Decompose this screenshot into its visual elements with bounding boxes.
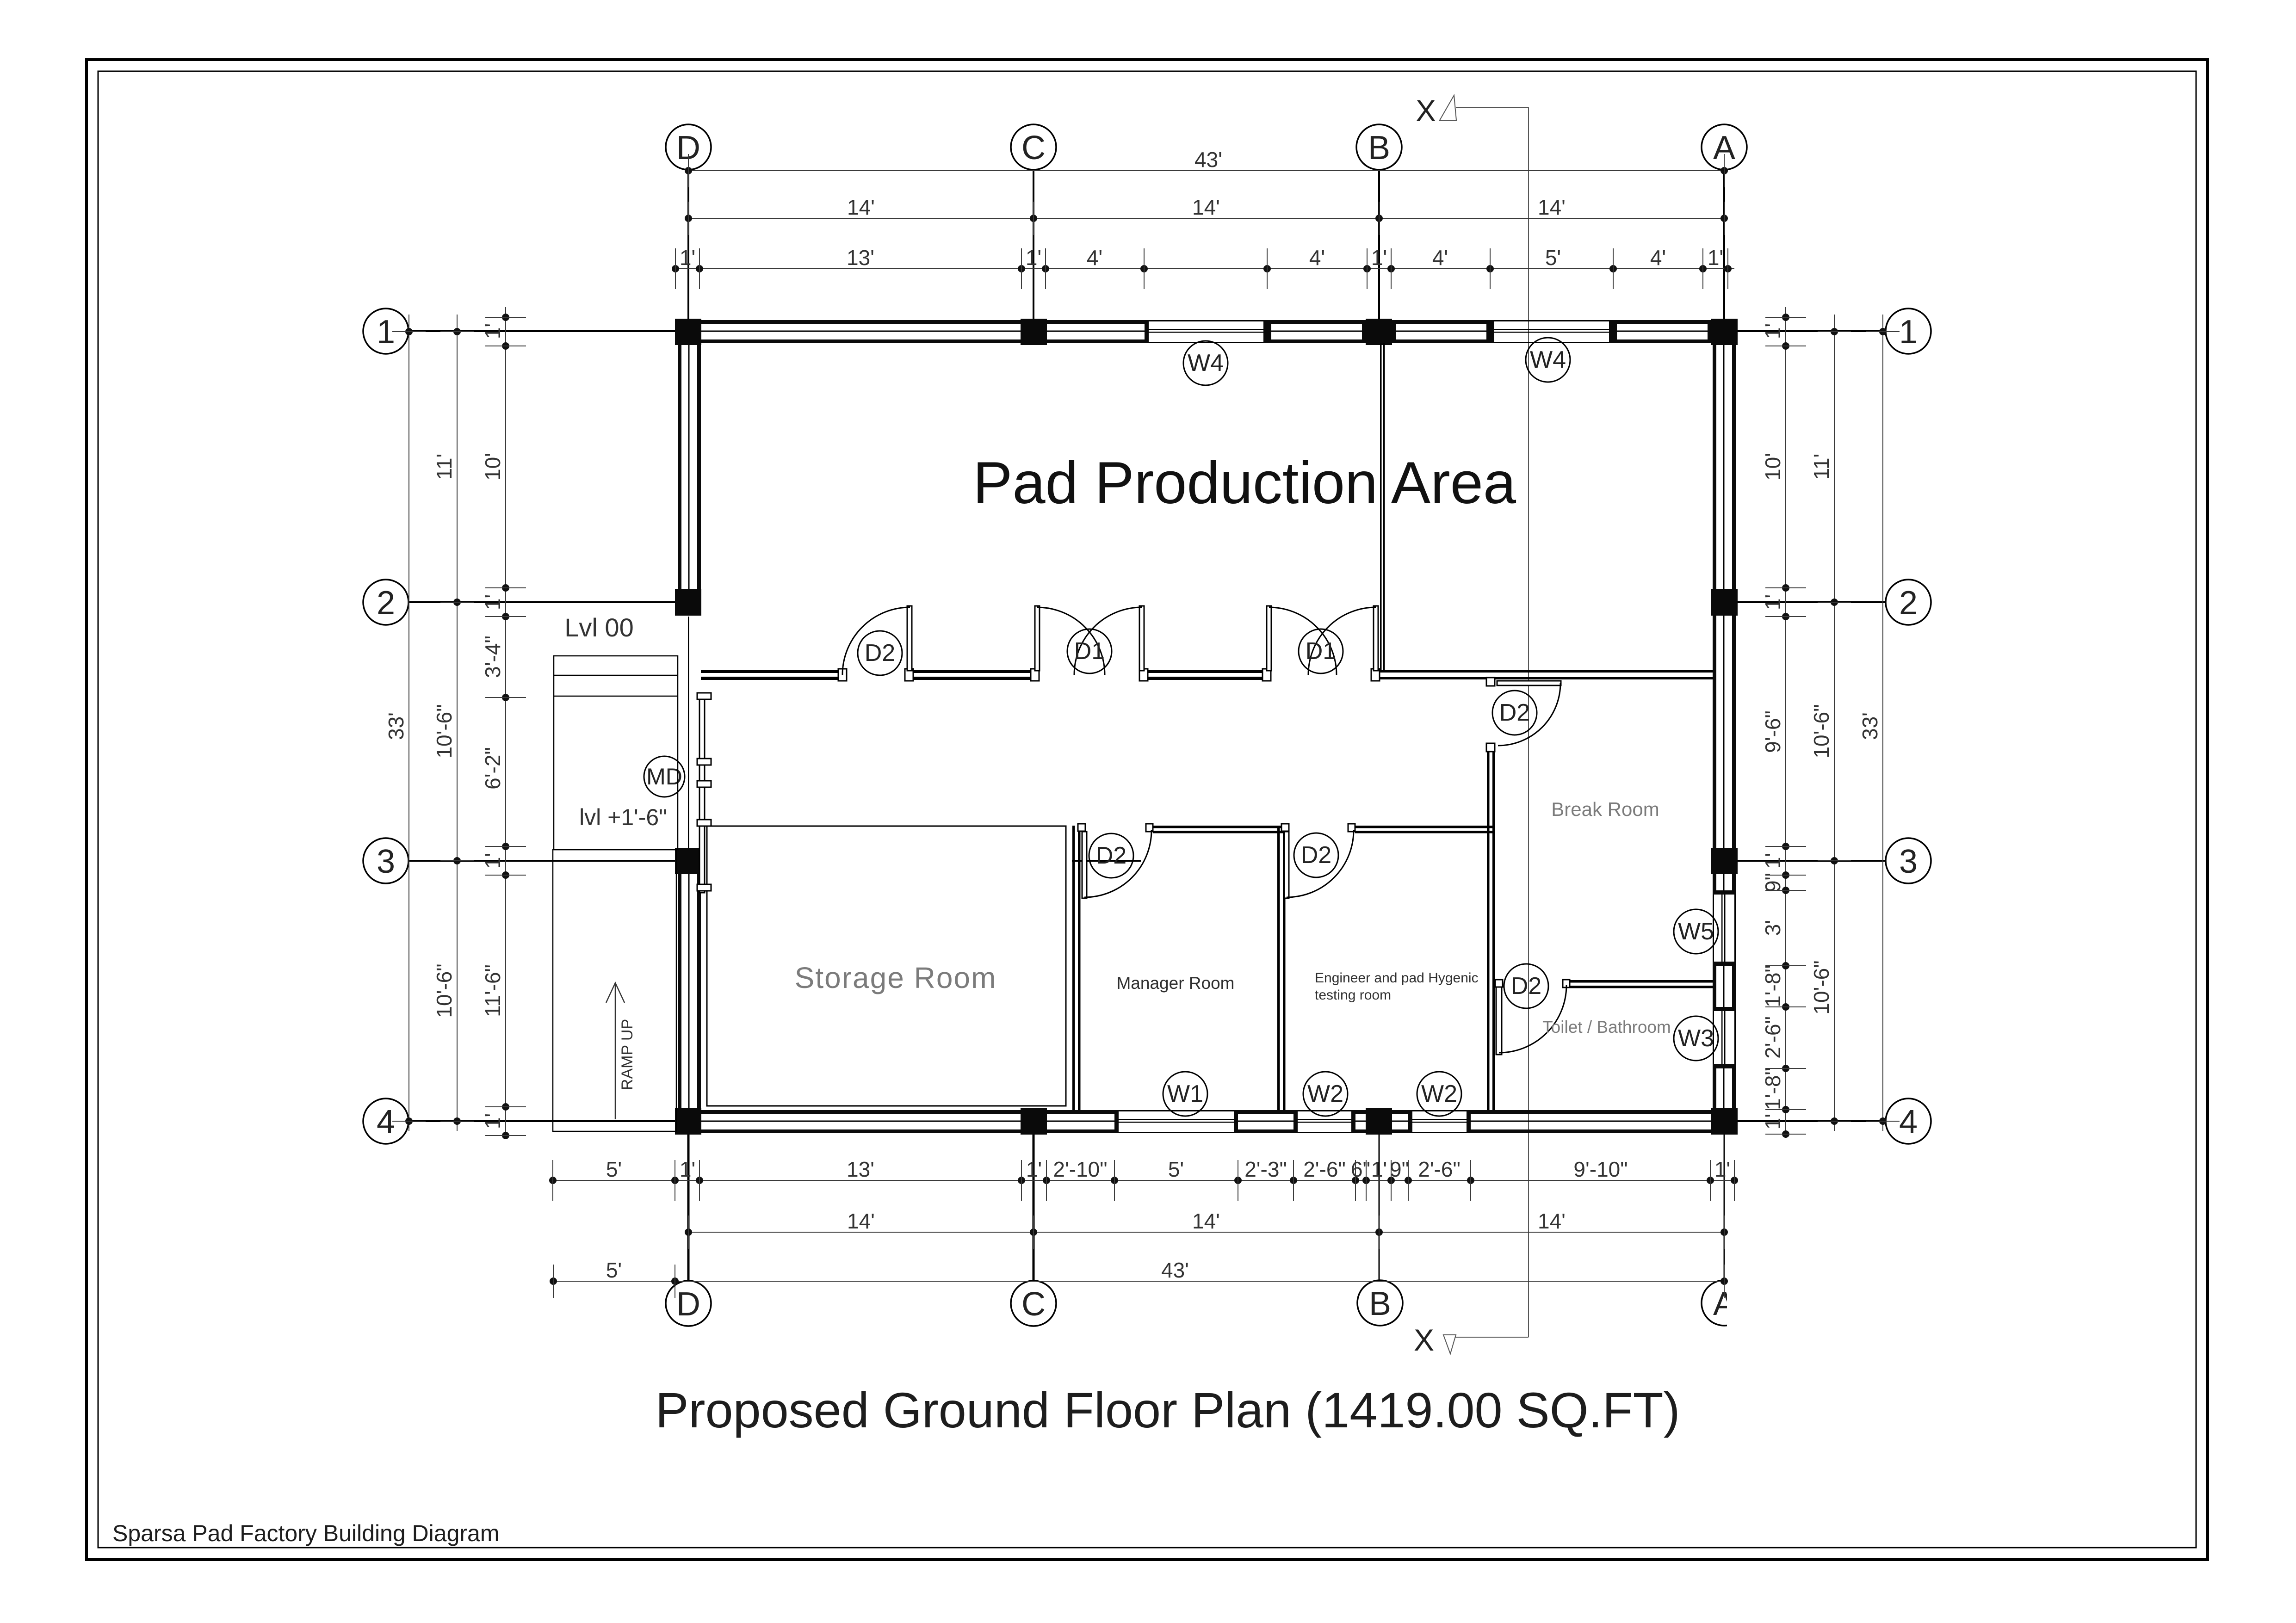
svg-text:C: C [1021, 130, 1046, 167]
svg-text:testing room: testing room [1315, 987, 1391, 1003]
svg-text:3: 3 [1899, 843, 1918, 880]
svg-text:5': 5' [1168, 1157, 1184, 1181]
svg-text:Storage Room: Storage Room [795, 961, 997, 994]
svg-text:Toilet / Bathroom: Toilet / Bathroom [1542, 1018, 1671, 1037]
svg-text:14': 14' [1192, 195, 1220, 219]
svg-text:W4: W4 [1530, 346, 1566, 373]
svg-text:X: X [1414, 1323, 1434, 1357]
svg-text:2'-3": 2'-3" [1244, 1157, 1287, 1181]
svg-text:9'-10": 9'-10" [1573, 1157, 1628, 1181]
svg-text:33': 33' [384, 712, 408, 740]
svg-text:X: X [1416, 93, 1436, 128]
svg-text:43': 43' [1161, 1258, 1189, 1282]
svg-text:1': 1' [1761, 594, 1785, 610]
svg-text:W1: W1 [1167, 1080, 1203, 1107]
svg-text:10'-6": 10'-6" [432, 963, 456, 1018]
svg-text:10': 10' [1761, 453, 1785, 481]
svg-text:2: 2 [377, 585, 395, 622]
svg-text:10': 10' [481, 453, 505, 481]
svg-text:1': 1' [1026, 1157, 1042, 1181]
svg-text:1': 1' [1708, 246, 1723, 270]
svg-text:W2: W2 [1421, 1080, 1457, 1107]
svg-text:B: B [1369, 1285, 1391, 1322]
svg-text:10'-6": 10'-6" [432, 704, 456, 758]
svg-text:D1: D1 [1074, 638, 1105, 665]
svg-text:1': 1' [481, 853, 505, 869]
svg-text:1': 1' [1714, 1157, 1730, 1181]
svg-text:13': 13' [847, 246, 874, 270]
svg-text:11': 11' [1809, 454, 1833, 480]
svg-text:Break Room: Break Room [1551, 798, 1659, 820]
svg-text:1': 1' [680, 246, 695, 270]
svg-text:11'-6": 11'-6" [481, 964, 505, 1017]
svg-text:5': 5' [606, 1258, 622, 1282]
svg-text:4': 4' [1432, 246, 1448, 270]
svg-text:9": 9" [1761, 873, 1785, 892]
svg-text:43': 43' [1194, 148, 1222, 172]
svg-text:Proposed Ground Floor Plan (1: Proposed Ground Floor Plan (1419.00 SQ.F… [655, 1382, 1680, 1438]
svg-text:W4: W4 [1188, 350, 1224, 376]
svg-text:D2: D2 [1301, 842, 1331, 869]
svg-text:RAMP UP: RAMP UP [619, 1019, 636, 1090]
svg-text:4': 4' [1650, 246, 1666, 270]
svg-text:1': 1' [680, 1157, 695, 1181]
svg-text:9": 9" [1390, 1157, 1409, 1181]
svg-text:D2: D2 [1096, 842, 1126, 869]
svg-text:lvl +1'-6": lvl +1'-6" [579, 804, 667, 830]
svg-text:1'-8": 1'-8" [1761, 965, 1785, 1007]
svg-text:2: 2 [1899, 585, 1918, 622]
svg-text:3: 3 [377, 843, 395, 880]
svg-text:1'-8": 1'-8" [1761, 1068, 1785, 1110]
svg-text:W3: W3 [1678, 1025, 1714, 1052]
svg-text:2'-6": 2'-6" [1303, 1157, 1346, 1181]
svg-text:13': 13' [847, 1157, 874, 1181]
svg-text:14': 14' [1538, 1209, 1566, 1233]
svg-text:14': 14' [1538, 195, 1566, 219]
svg-text:3'-4": 3'-4" [481, 636, 505, 678]
svg-text:Manager Room: Manager Room [1116, 974, 1234, 993]
svg-text:1': 1' [1761, 323, 1785, 339]
svg-text:14': 14' [847, 195, 875, 219]
svg-text:D1: D1 [1306, 638, 1336, 665]
svg-text:2'-10": 2'-10" [1053, 1157, 1107, 1181]
svg-text:D2: D2 [1499, 699, 1530, 726]
svg-text:Sparsa Pad Factory Building Di: Sparsa Pad Factory Building Diagram [112, 1520, 500, 1546]
svg-text:Pad Production Area: Pad Production Area [973, 450, 1516, 516]
svg-text:B: B [1368, 130, 1390, 167]
svg-text:33': 33' [1858, 712, 1882, 740]
svg-text:D2: D2 [865, 640, 895, 666]
svg-text:4': 4' [1309, 246, 1325, 270]
svg-text:5': 5' [1545, 246, 1561, 270]
svg-text:3': 3' [1761, 920, 1785, 936]
svg-text:1': 1' [481, 594, 505, 610]
svg-text:1': 1' [1371, 1157, 1387, 1181]
svg-text:10'-6": 10'-6" [1809, 704, 1833, 758]
svg-text:4: 4 [1899, 1104, 1918, 1141]
svg-text:2'-6": 2'-6" [1418, 1157, 1461, 1181]
svg-text:MD: MD [646, 764, 682, 790]
svg-text:14': 14' [1192, 1209, 1220, 1233]
svg-text:W2: W2 [1307, 1080, 1343, 1107]
svg-text:D: D [676, 1286, 700, 1323]
svg-text:4': 4' [1087, 246, 1102, 270]
svg-text:4: 4 [377, 1104, 395, 1141]
svg-text:1': 1' [481, 1113, 505, 1129]
svg-text:1: 1 [1899, 314, 1918, 351]
svg-text:D2: D2 [1511, 973, 1541, 1000]
svg-text:1': 1' [1026, 246, 1041, 270]
svg-text:6'-2": 6'-2" [481, 747, 505, 790]
svg-text:11': 11' [432, 454, 456, 480]
svg-text:14': 14' [847, 1209, 875, 1233]
svg-text:1': 1' [481, 323, 505, 339]
svg-text:10'-6": 10'-6" [1809, 960, 1833, 1014]
svg-text:Lvl 00: Lvl 00 [564, 613, 633, 642]
svg-text:6": 6" [1351, 1157, 1370, 1181]
svg-text:C: C [1021, 1286, 1046, 1323]
svg-text:1': 1' [1761, 1114, 1785, 1129]
svg-text:1': 1' [1761, 853, 1785, 869]
svg-text:9'-6": 9'-6" [1761, 710, 1785, 753]
svg-text:2'-6": 2'-6" [1761, 1016, 1785, 1059]
svg-text:W5: W5 [1678, 918, 1714, 945]
svg-text:Engineer and pad Hygenic: Engineer and pad Hygenic [1315, 970, 1479, 986]
svg-text:1': 1' [1371, 246, 1387, 270]
svg-text:5': 5' [606, 1157, 622, 1181]
